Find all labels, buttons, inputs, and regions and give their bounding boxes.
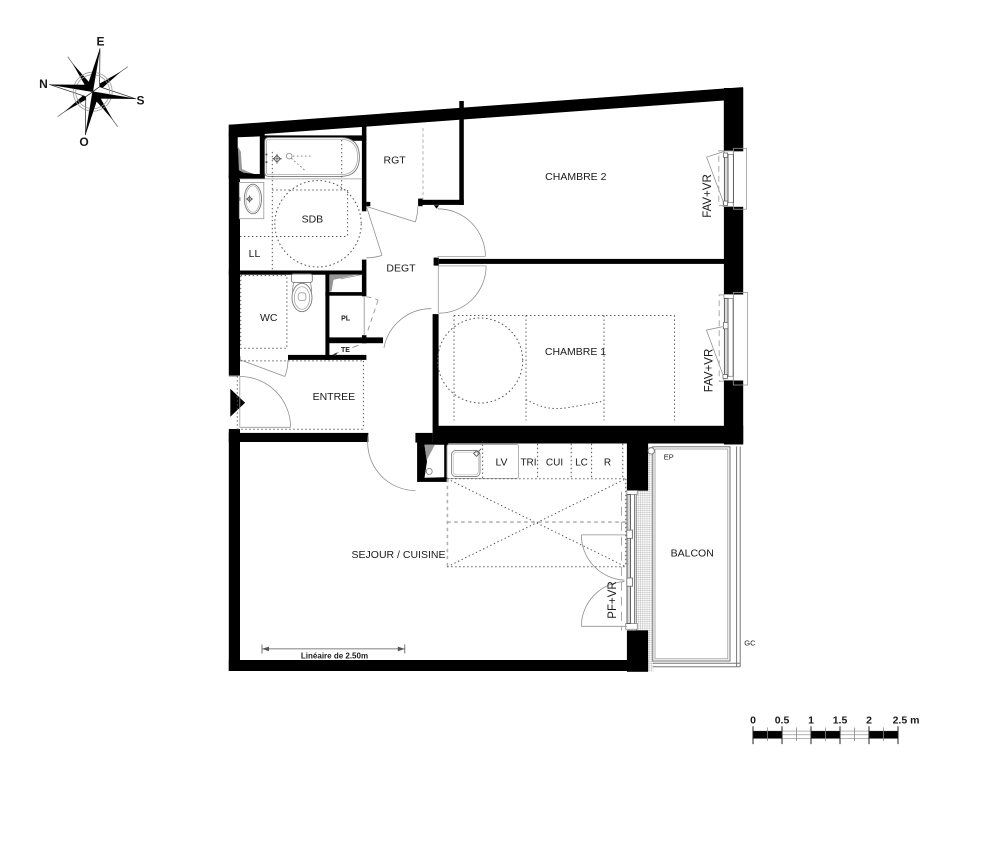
svg-text:LL: LL [249,248,261,260]
svg-text:FAV+VR: FAV+VR [704,349,716,393]
svg-text:Linéaire de 2.50m: Linéaire de 2.50m [301,652,368,661]
svg-text:DEGT: DEGT [386,262,416,274]
svg-text:CHAMBRE 2: CHAMBRE 2 [545,171,606,183]
svg-text:ENTREE: ENTREE [313,391,356,403]
svg-text:0: 0 [750,715,756,727]
svg-text:0.5: 0.5 [775,715,790,727]
svg-text:1.5: 1.5 [833,715,848,727]
svg-text:LV: LV [495,457,507,469]
svg-text:R: R [604,458,611,469]
svg-text:LC: LC [575,458,588,469]
svg-text:1: 1 [808,715,814,727]
svg-text:E: E [96,35,104,49]
svg-text:SEJOUR / CUISINE: SEJOUR / CUISINE [352,549,446,561]
svg-text:WC: WC [260,312,278,324]
svg-text:PL: PL [341,315,351,322]
svg-text:FAV+VR: FAV+VR [702,174,714,218]
svg-text:O: O [79,135,88,149]
svg-text:S: S [136,94,144,108]
svg-text:TRI: TRI [520,458,536,469]
svg-text:GC: GC [744,639,756,648]
svg-text:TE: TE [341,347,350,354]
svg-text:2: 2 [866,715,872,727]
svg-text:BALCON: BALCON [671,547,714,559]
svg-text:PF+VR: PF+VR [607,581,619,618]
svg-text:SDB: SDB [302,213,324,225]
svg-text:N: N [39,77,48,91]
svg-text:EP: EP [664,452,674,461]
svg-text:2.5 m: 2.5 m [893,715,920,727]
svg-text:CHAMBRE 1: CHAMBRE 1 [545,346,606,358]
svg-text:RGT: RGT [384,155,407,167]
svg-text:CUI: CUI [546,458,563,469]
